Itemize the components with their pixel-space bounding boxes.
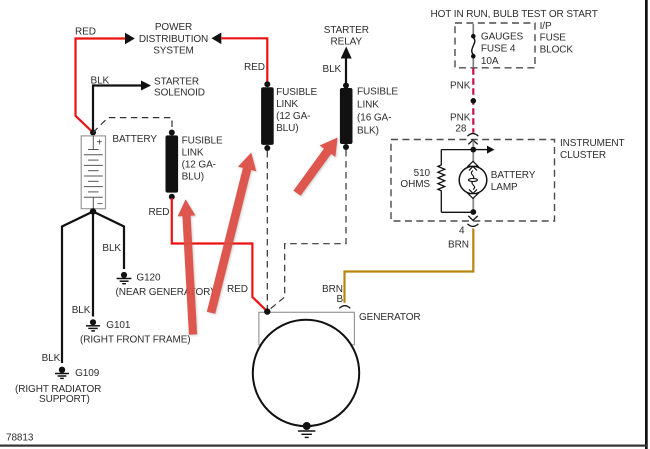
svg-text:INSTRUMENT: INSTRUMENT — [560, 138, 625, 149]
svg-text:−: − — [97, 199, 103, 210]
svg-text:CLUSTER: CLUSTER — [560, 150, 606, 161]
svg-text:(12 GA-: (12 GA- — [276, 111, 310, 122]
svg-text:BLU): BLU) — [276, 123, 298, 134]
svg-text:STARTER: STARTER — [154, 77, 199, 88]
svg-text:SYSTEM: SYSTEM — [153, 46, 194, 57]
svg-text:4: 4 — [459, 226, 465, 237]
svg-text:510: 510 — [414, 168, 431, 179]
svg-text:FUSE 4: FUSE 4 — [481, 44, 516, 55]
svg-text:PNK: PNK — [450, 81, 471, 92]
svg-text:PNK: PNK — [450, 113, 471, 124]
svg-text:BLK): BLK) — [357, 126, 379, 137]
svg-text:78813: 78813 — [6, 433, 34, 444]
svg-text:FUSIBLE: FUSIBLE — [182, 135, 223, 146]
svg-text:+: + — [97, 138, 103, 149]
svg-text:B: B — [337, 294, 344, 305]
svg-text:G109: G109 — [75, 368, 100, 379]
svg-text:28: 28 — [455, 124, 466, 135]
svg-text:LINK: LINK — [276, 99, 298, 110]
svg-text:(16 GA-: (16 GA- — [357, 113, 391, 124]
svg-text:(RIGHT FRONT FRAME): (RIGHT FRONT FRAME) — [80, 335, 191, 346]
svg-text:OHMS: OHMS — [400, 179, 430, 190]
svg-text:BATTERY: BATTERY — [491, 170, 536, 181]
svg-text:HOT IN RUN, BULB TEST OR START: HOT IN RUN, BULB TEST OR START — [431, 9, 598, 20]
svg-text:I/P: I/P — [540, 21, 552, 32]
svg-text:SUPPORT): SUPPORT) — [39, 394, 90, 405]
svg-text:BRN: BRN — [448, 240, 469, 251]
svg-text:DISTRIBUTION: DISTRIBUTION — [139, 34, 208, 45]
svg-text:BLK: BLK — [323, 64, 342, 75]
svg-text:BLU): BLU) — [182, 171, 204, 182]
svg-text:RED: RED — [227, 284, 248, 295]
svg-text:RED: RED — [244, 62, 265, 73]
svg-text:BLK: BLK — [42, 353, 61, 364]
svg-text:10A: 10A — [481, 56, 499, 67]
svg-text:GENERATOR: GENERATOR — [359, 312, 421, 323]
svg-text:BLK: BLK — [102, 243, 121, 254]
svg-text:G101: G101 — [106, 320, 131, 331]
svg-text:BLK: BLK — [72, 305, 91, 316]
svg-text:GAUGES: GAUGES — [481, 32, 524, 43]
svg-text:FUSE: FUSE — [540, 33, 567, 44]
svg-text:FUSIBLE: FUSIBLE — [276, 87, 317, 98]
svg-text:LINK: LINK — [357, 100, 379, 111]
svg-text:SOLENOID: SOLENOID — [154, 88, 205, 99]
svg-text:RELAY: RELAY — [331, 36, 363, 47]
svg-text:FUSIBLE: FUSIBLE — [357, 87, 398, 98]
svg-text:(NEAR GENERATOR): (NEAR GENERATOR) — [116, 287, 214, 298]
svg-text:BATTERY: BATTERY — [112, 134, 157, 145]
svg-text:G120: G120 — [136, 273, 161, 284]
svg-text:LAMP: LAMP — [491, 182, 518, 193]
svg-text:BLOCK: BLOCK — [540, 44, 574, 55]
svg-text:RED: RED — [75, 27, 96, 38]
svg-text:RED: RED — [149, 207, 170, 218]
svg-text:STARTER: STARTER — [324, 25, 369, 36]
svg-text:LINK: LINK — [182, 147, 204, 158]
svg-text:POWER: POWER — [155, 22, 192, 33]
svg-text:(12 GA-: (12 GA- — [182, 159, 216, 170]
